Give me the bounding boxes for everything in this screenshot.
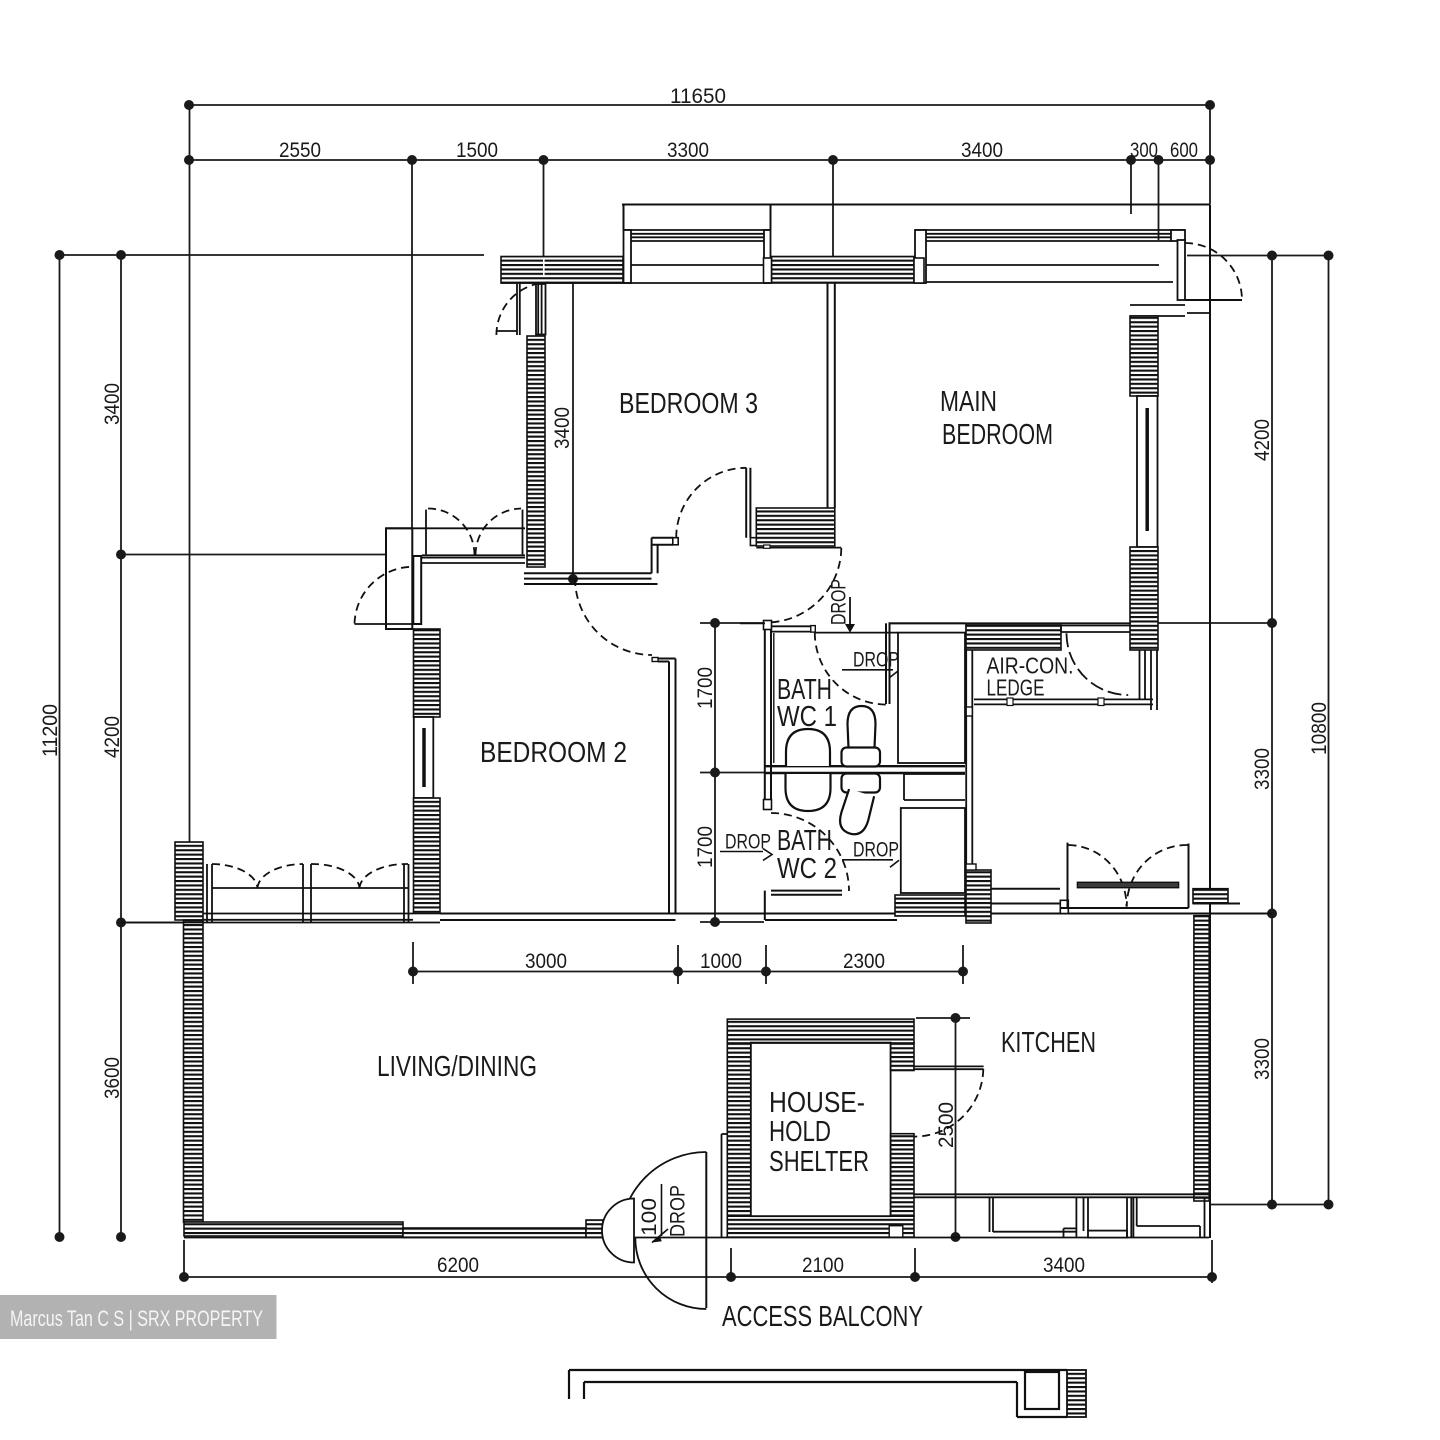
svg-text:DROP: DROP bbox=[853, 649, 899, 672]
svg-text:100: 100 bbox=[638, 1198, 661, 1236]
svg-text:BEDROOM 3: BEDROOM 3 bbox=[619, 388, 758, 420]
svg-text:3000: 3000 bbox=[525, 950, 567, 973]
svg-text:MAIN: MAIN bbox=[940, 386, 997, 418]
svg-text:SHELTER: SHELTER bbox=[769, 1146, 869, 1178]
svg-text:6200: 6200 bbox=[437, 1254, 479, 1277]
svg-text:300: 300 bbox=[1130, 139, 1158, 162]
svg-text:LEDGE: LEDGE bbox=[987, 675, 1045, 701]
svg-text:3600: 3600 bbox=[101, 1057, 124, 1099]
svg-text:WC 1: WC 1 bbox=[777, 701, 837, 733]
svg-text:KITCHEN: KITCHEN bbox=[1001, 1027, 1096, 1059]
svg-text:1700: 1700 bbox=[694, 667, 717, 709]
svg-text:3400: 3400 bbox=[101, 383, 124, 425]
svg-text:10800: 10800 bbox=[1308, 702, 1331, 755]
svg-text:3300: 3300 bbox=[1251, 748, 1274, 790]
svg-text:3400: 3400 bbox=[551, 407, 574, 449]
svg-text:3400: 3400 bbox=[961, 139, 1003, 162]
svg-text:HOUSE-: HOUSE- bbox=[769, 1087, 865, 1119]
svg-text:ACCESS BALCONY: ACCESS BALCONY bbox=[722, 1301, 923, 1333]
svg-text:1500: 1500 bbox=[456, 139, 498, 162]
svg-text:3400: 3400 bbox=[1043, 1254, 1085, 1277]
svg-text:1000: 1000 bbox=[700, 950, 742, 973]
svg-text:3300: 3300 bbox=[1251, 1038, 1274, 1080]
svg-text:Marcus Tan C S | SRX PROPERTY: Marcus Tan C S | SRX PROPERTY bbox=[10, 1306, 263, 1331]
svg-text:11650: 11650 bbox=[670, 85, 726, 108]
svg-text:BEDROOM: BEDROOM bbox=[942, 419, 1053, 451]
svg-text:HOLD: HOLD bbox=[769, 1116, 831, 1148]
svg-text:600: 600 bbox=[1170, 139, 1198, 162]
svg-text:2100: 2100 bbox=[802, 1254, 844, 1277]
svg-text:2300: 2300 bbox=[843, 950, 885, 973]
svg-text:3300: 3300 bbox=[667, 139, 709, 162]
svg-text:1700: 1700 bbox=[694, 826, 717, 868]
svg-text:4200: 4200 bbox=[1251, 419, 1274, 461]
svg-text:4200: 4200 bbox=[101, 716, 124, 758]
svg-text:11200: 11200 bbox=[39, 704, 62, 757]
svg-text:2550: 2550 bbox=[279, 139, 321, 162]
svg-text:DROP: DROP bbox=[853, 839, 899, 862]
svg-text:DROP: DROP bbox=[828, 579, 851, 625]
svg-text:LIVING/DINING: LIVING/DINING bbox=[377, 1051, 537, 1083]
svg-text:BEDROOM 2: BEDROOM 2 bbox=[480, 737, 627, 769]
svg-text:2500: 2500 bbox=[935, 1102, 958, 1148]
svg-text:WC 2: WC 2 bbox=[777, 853, 837, 885]
svg-text:DROP: DROP bbox=[667, 1185, 690, 1237]
